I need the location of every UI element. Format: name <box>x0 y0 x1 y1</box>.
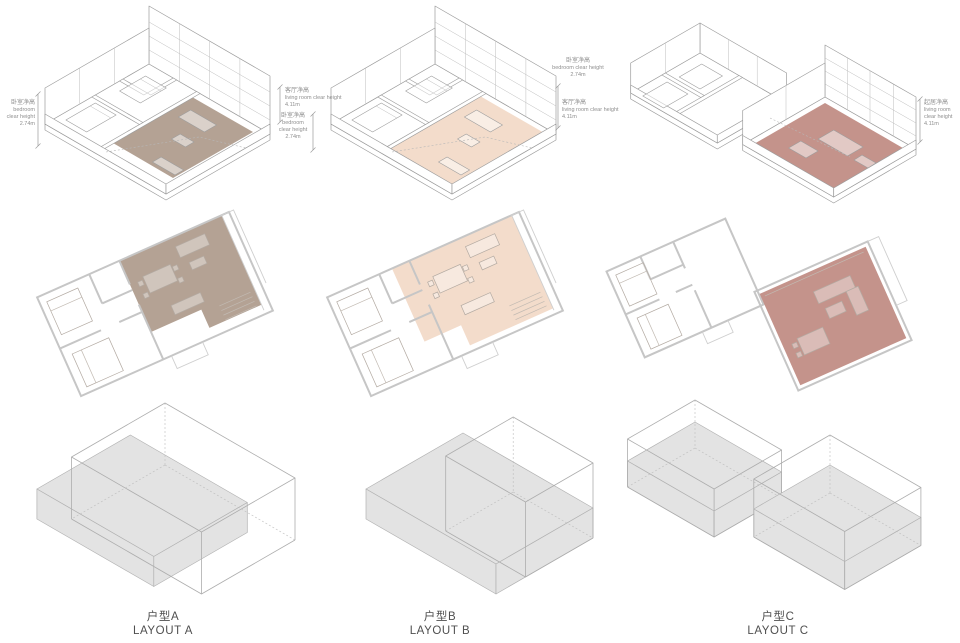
layout-b-axon-shell <box>331 6 556 200</box>
annotation-value: 2.74m <box>1 121 35 128</box>
caption-zh: 户型B <box>340 611 540 625</box>
living-room-plan-highlight <box>392 215 553 361</box>
entry-porch <box>171 342 208 369</box>
layout-c-axonometric-view <box>600 5 930 230</box>
caption-zh: 户型C <box>678 611 878 625</box>
annotation-value: 4.11m <box>285 102 357 109</box>
annotation-label-zh: 卧室净高 <box>1 100 35 107</box>
caption-layout-b: 户型B LAYOUT B <box>340 611 540 638</box>
architectural-layout-comparison-sheet: 卧室净高 bedroom clear height 2.74m 客厅净高 liv… <box>0 0 960 643</box>
annotation-value: 4.11m <box>562 114 630 121</box>
annotation-b-living-height: 客厅净高 living room clear height 4.11m <box>562 100 630 121</box>
bed <box>616 263 657 306</box>
annotation-label-zh: 客厅净高 <box>285 88 357 95</box>
annotation-a-bedroom-height-left: 卧室净高 bedroom clear height 2.74m <box>1 100 35 128</box>
layout-a-massing-diagram <box>15 393 315 618</box>
annotation-value: 2.74m <box>540 72 616 79</box>
caption-en: LAYOUT B <box>340 625 540 639</box>
annotation-label-en: clear height <box>1 114 35 121</box>
layout-b-floor-plan <box>295 212 595 397</box>
layout-b-massing-diagram <box>305 393 605 618</box>
bed <box>637 304 682 349</box>
annotation-label-en: bedroom <box>276 120 310 127</box>
caption-layout-c: 户型C LAYOUT C <box>678 611 878 638</box>
annotation-label-zh: 客厅净高 <box>562 100 630 107</box>
low-ceiling-slab <box>366 433 593 594</box>
bed <box>337 288 383 335</box>
living-pavilion-box <box>754 435 921 590</box>
bed <box>47 288 93 335</box>
layout-b-axonometric-view <box>280 2 580 227</box>
layout-a-axon-shell <box>45 6 270 200</box>
annotation-label-en: bedroom <box>1 107 35 114</box>
annotation-label-zh: 起居净高 <box>924 100 959 107</box>
annotation-label-zh: 卧室净高 <box>276 113 310 120</box>
plan-bedroom-wing <box>607 219 769 370</box>
caption-layout-a: 户型A LAYOUT A <box>63 611 263 638</box>
low-ceiling-slab <box>37 435 247 587</box>
annotation-a-bedroom-height-right: 卧室净高 bedroom clear height 2.74m <box>276 113 310 141</box>
caption-en: LAYOUT C <box>678 625 878 639</box>
annotation-a-living-height: 客厅净高 living room clear height 4.11m <box>285 88 357 109</box>
caption-zh: 户型A <box>63 611 263 625</box>
annotation-value: 4.11m <box>924 121 959 128</box>
annotation-label-en: living room clear height <box>562 107 630 114</box>
annotation-b-bedroom-height: 卧室净高 bedroom clear height 2.74m <box>540 58 616 79</box>
annotation-c-living-height: 起居净高 living room clear height 4.11m <box>924 100 959 128</box>
annotation-label-zh: 卧室净高 <box>540 58 616 65</box>
annotation-label-en: living room <box>924 107 959 114</box>
annotation-value: 2.74m <box>276 134 310 141</box>
caption-en: LAYOUT A <box>63 625 263 639</box>
layout-c-floor-plan <box>583 210 933 400</box>
plan-living-block <box>754 237 922 391</box>
annotation-label-en: living room clear height <box>285 95 357 102</box>
layout-a-floor-plan <box>5 212 305 397</box>
annotation-label-en: bedroom clear height <box>540 65 616 72</box>
annotation-label-en: clear height <box>276 127 310 134</box>
layout-a-axonometric-view <box>0 2 294 227</box>
annotation-label-en: clear height <box>924 114 959 121</box>
entry-porch <box>461 342 498 369</box>
layout-c-massing-diagram <box>595 393 925 628</box>
